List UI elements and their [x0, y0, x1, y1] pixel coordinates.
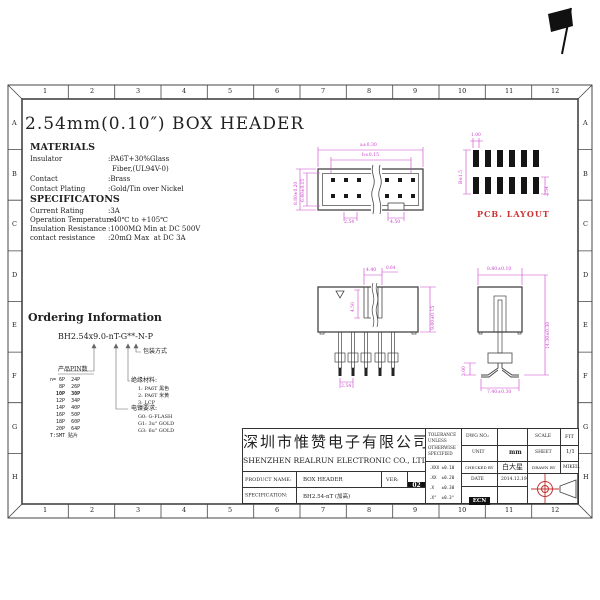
- zone-col-top: 5: [228, 88, 232, 95]
- sheet-value-cell: 1/1: [560, 445, 579, 462]
- zone-row-right: E: [583, 322, 588, 329]
- date-label: DATE: [471, 478, 484, 483]
- spec-value: :1000MΩ Min at DC 500V: [108, 226, 200, 233]
- zone-col-top: 4: [182, 88, 186, 95]
- tolerance-row: .XX ±0.20: [429, 476, 454, 480]
- dim-front-slot: 4.40: [366, 269, 376, 274]
- dwg-no-label-cell: DWG NO.:: [461, 428, 498, 446]
- zone-row-right: B: [583, 171, 588, 178]
- materials-label: Contact: [30, 176, 58, 183]
- tolerance-title: TOLERANCE UNLESS OTHERWISE SPECIFIED: [428, 432, 461, 457]
- materials-value: :Gold/Tin over Nickel: [108, 186, 184, 193]
- plating-option-heading: 电镍要求:: [131, 406, 157, 412]
- date-value-cell: 2014.12.19: [497, 473, 528, 487]
- tolerance-values-cell: .XXX ±0.10 .XX ±0.20 .X ±0.30 .X° ±0.3°: [425, 461, 462, 504]
- materials-label: Insulator: [30, 156, 62, 163]
- flag-icon: [548, 8, 573, 54]
- dwg-no-label: DWG NO.:: [466, 435, 490, 440]
- zone-row-right: A: [583, 120, 588, 127]
- projection-symbol-cell: [527, 473, 579, 504]
- zone-row-right: C: [583, 221, 588, 228]
- dim-pcb-row: B±1.5: [460, 170, 465, 184]
- tolerance-row: .X° ±0.3°: [429, 496, 454, 500]
- drawn-by-label: DRAWN BY: [532, 466, 555, 470]
- page-title: 2.54mm(0.10″) BOX HEADER: [25, 116, 304, 134]
- pcb-layout-label: PCB. LAYOUT: [477, 210, 550, 218]
- ordering-packaging-label: 包装方式: [143, 349, 167, 355]
- spec-label: contact resistance: [30, 235, 95, 242]
- dim-top-outer: a±0.30: [360, 144, 377, 149]
- dim-pcb-pad: 1.00: [471, 134, 481, 139]
- unit-label-cell: UNIT: [461, 445, 498, 462]
- materials-value: :PA6T+30%Glass: [108, 156, 169, 163]
- sheet-label: SHEET: [535, 451, 552, 456]
- pcb-layout-drawing: [463, 138, 549, 194]
- dim-top-pitch: 2.54: [344, 221, 354, 226]
- scale-value: FIT: [565, 435, 574, 440]
- zone-row-left: H: [12, 474, 18, 481]
- tolerance-title-cell: TOLERANCE UNLESS OTHERWISE SPECIFIED: [425, 428, 462, 462]
- materials-heading: MATERIALS: [30, 143, 95, 153]
- spec-label: Current Rating: [30, 208, 84, 215]
- zone-col-bottom: 1: [43, 507, 47, 514]
- ordering-part-number: BH2.54x9.0-nT-G**-N-P: [58, 333, 153, 341]
- zone-col-bottom: 5: [228, 507, 232, 514]
- zone-row-left: F: [12, 373, 17, 380]
- spec-label: SPECIFICATION:: [245, 493, 287, 498]
- product-name-label-cell: PRODUCT NAME:: [242, 471, 297, 488]
- zone-col-top: 12: [551, 88, 559, 95]
- pin-count-row: 16P 50P: [50, 413, 80, 418]
- spec-value: :-40℃ to +105℃: [108, 217, 168, 224]
- scale-label: SCALE: [535, 435, 551, 440]
- material-option-heading: 绝缘材料:: [131, 378, 157, 384]
- drawn-by-value: MIKEL.: [563, 466, 580, 471]
- checked-by-value: 白大星: [502, 464, 523, 471]
- plating-option: G3: 6u" GOLD: [138, 429, 174, 434]
- datasheet-page: 1 2 3 4 5 6 7 8 9 10 11 12 1 2 3 4 5 6 7…: [0, 0, 600, 600]
- ecn-value-cell: [497, 486, 528, 504]
- product-name-label: PRODUCT NAME:: [245, 477, 292, 483]
- zone-row-left: C: [12, 221, 17, 228]
- ordering-heading: Ordering Information: [28, 312, 162, 324]
- ver-value-cell: 02: [407, 471, 426, 488]
- spec-value-cell: BH2.54-nT (加高): [296, 487, 426, 504]
- product-name-value: BOX HEADER: [303, 477, 343, 483]
- company-name-en: SHENZHEN REALRUN ELECTRONIC CO., LTD.: [243, 457, 425, 465]
- zone-row-right: H: [583, 474, 589, 481]
- zone-col-bottom: 6: [275, 507, 279, 514]
- zone-col-bottom: 3: [136, 507, 140, 514]
- scale-label-cell: SCALE: [527, 428, 561, 446]
- pin-count-heading: 产品PIN数: [58, 367, 88, 373]
- dim-side-standoff: 3.00: [463, 366, 468, 376]
- tolerance-row: .X ±0.30: [429, 486, 454, 490]
- zone-col-bottom: 12: [551, 507, 559, 514]
- zone-col-top: 8: [367, 88, 371, 95]
- materials-value: :Brass: [108, 176, 130, 183]
- dwg-no-value-cell: [497, 428, 528, 446]
- ver-label-cell: VER:: [381, 471, 408, 488]
- zone-col-top: 6: [275, 88, 279, 95]
- spec-value: :20mΩ Max at DC 3A: [108, 235, 186, 242]
- checked-by-label: CHECKED BY: [465, 466, 493, 470]
- unit-value-cell: mm: [497, 445, 528, 462]
- ecn-badge: ECN: [469, 497, 491, 505]
- date-label-cell: DATE: [461, 473, 498, 487]
- dim-front-depth: 4.50: [352, 302, 357, 312]
- ecn-cell: ECN: [461, 486, 498, 504]
- zone-col-top: 10: [458, 88, 466, 95]
- unit-label: UNIT: [472, 451, 485, 456]
- zone-row-left: G: [12, 424, 17, 431]
- plating-option: G1: 3u" GOLD: [138, 422, 174, 427]
- zone-row-left: B: [12, 171, 17, 178]
- pin-count-row: T:SMT 贴片: [50, 434, 78, 439]
- zone-col-bottom: 4: [182, 507, 186, 514]
- spec-label: Insulation Resistance: [30, 226, 106, 233]
- zone-col-bottom: 11: [505, 507, 513, 514]
- spec-value: :3A: [108, 208, 120, 215]
- zone-row-left: A: [12, 120, 17, 127]
- scale-value-cell: FIT: [560, 428, 579, 446]
- dim-top-notch: 4.50: [390, 221, 400, 226]
- date-value: 2014.12.19: [501, 478, 527, 483]
- spec-label: Operation Temperature: [30, 217, 114, 224]
- company-cell: 深圳市惟赞电子有限公司 SHENZHEN REALRUN ELECTRONIC …: [242, 428, 426, 472]
- dim-side-width: 8.80±0.10: [487, 268, 511, 273]
- zone-col-top: 9: [413, 88, 417, 95]
- pin-count-row: 8P 26P: [50, 385, 80, 390]
- dim-top-left-outer: 8.80±0.20: [295, 182, 300, 205]
- zone-col-top: 1: [43, 88, 47, 95]
- spec-label-cell: SPECIFICATION:: [242, 487, 297, 504]
- material-option: 1: PA6T 黑色: [138, 387, 169, 392]
- top-view-drawing: [296, 147, 423, 221]
- zone-row-left: D: [12, 272, 17, 279]
- plating-option: G0: G-FLASH: [138, 415, 172, 420]
- pin-count-row: n= 6P 24P: [50, 378, 80, 383]
- zone-col-top: 2: [90, 88, 94, 95]
- ver-label: VER:: [386, 477, 399, 483]
- dim-front-pin: 0.64: [386, 266, 395, 270]
- zone-col-bottom: 10: [458, 507, 466, 514]
- side-view-drawing: [464, 268, 549, 391]
- dim-pcb-pitch: 2.54: [546, 186, 551, 196]
- pin-count-row: 20P 64P: [50, 427, 80, 432]
- zone-row-right: D: [583, 272, 588, 279]
- dim-front-pitch: 2.54: [341, 385, 351, 390]
- material-option: 2: PA6T 米黄: [138, 394, 169, 399]
- pin-count-row: 10P 30P: [50, 392, 80, 397]
- zone-row-left: E: [12, 322, 17, 329]
- dim-side-foot: 7.40±0.30: [487, 391, 511, 396]
- dim-top-inner: b±0.15: [362, 154, 379, 159]
- pin-count-row: 14P 40P: [50, 406, 80, 411]
- materials-label: Contact Plating: [30, 186, 85, 193]
- sheet-value: 1/1: [566, 450, 575, 456]
- specifications-heading: SPECIFICATONS: [30, 195, 120, 205]
- zone-row-right: F: [583, 373, 588, 380]
- company-name-cn: 深圳市惟赞电子有限公司: [243, 435, 425, 451]
- unit-value: mm: [509, 450, 522, 456]
- sheet-label-cell: SHEET: [527, 445, 561, 462]
- zone-col-bottom: 7: [321, 507, 325, 514]
- zone-col-top: 11: [505, 88, 513, 95]
- zone-col-top: 7: [321, 88, 325, 95]
- zone-col-bottom: 8: [367, 507, 371, 514]
- tolerance-row: .XXX ±0.10: [429, 466, 454, 470]
- zone-col-bottom: 2: [90, 507, 94, 514]
- pin-count-row: 12P 34P: [50, 399, 80, 404]
- spec-value: BH2.54-nT (加高): [303, 492, 350, 500]
- dim-side-total: 14.30±0.30: [547, 322, 552, 349]
- zone-col-bottom: 9: [413, 507, 417, 514]
- product-name-cell: BOX HEADER: [296, 471, 382, 488]
- dim-top-left-inner: 6.40±0.15: [302, 179, 307, 202]
- materials-value: Fiber,(UL94V-0): [112, 166, 169, 173]
- zone-row-right: G: [583, 424, 588, 431]
- pin-count-row: 18P 60P: [50, 420, 80, 425]
- zone-col-top: 3: [136, 88, 140, 95]
- dim-front-height: 9.00±0.15: [432, 306, 437, 330]
- front-view-drawing: [318, 268, 436, 388]
